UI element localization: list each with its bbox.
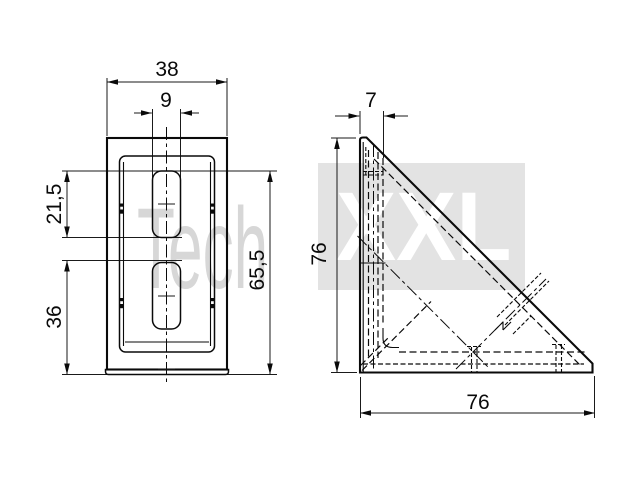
hidden-diagonal: [362, 302, 431, 371]
watermark-text-tech: Tech: [137, 183, 268, 312]
technical-drawing-page: Tech XXL: [0, 0, 640, 480]
dim-text-7: 7: [365, 89, 377, 112]
dim-text-76-height: 76: [308, 242, 331, 265]
dim-text-9: 9: [160, 89, 172, 112]
dim-text-65-5: 65,5: [246, 250, 269, 291]
hidden-diagonal: [361, 337, 390, 366]
centerline-screw-axis: [456, 279, 546, 369]
drawing-canvas: Tech XXL: [0, 0, 640, 480]
dim-text-38: 38: [155, 58, 178, 81]
dim-text-21-5: 21,5: [43, 184, 66, 225]
watermark-text-xxl: XXL: [336, 172, 511, 281]
dim-text-76-depth: 76: [466, 391, 489, 414]
screw-channel-break: [495, 322, 511, 330]
dim-text-36: 36: [43, 305, 66, 328]
inner-corner-fillet: [383, 328, 399, 348]
screw-channel-hidden: [513, 316, 531, 334]
